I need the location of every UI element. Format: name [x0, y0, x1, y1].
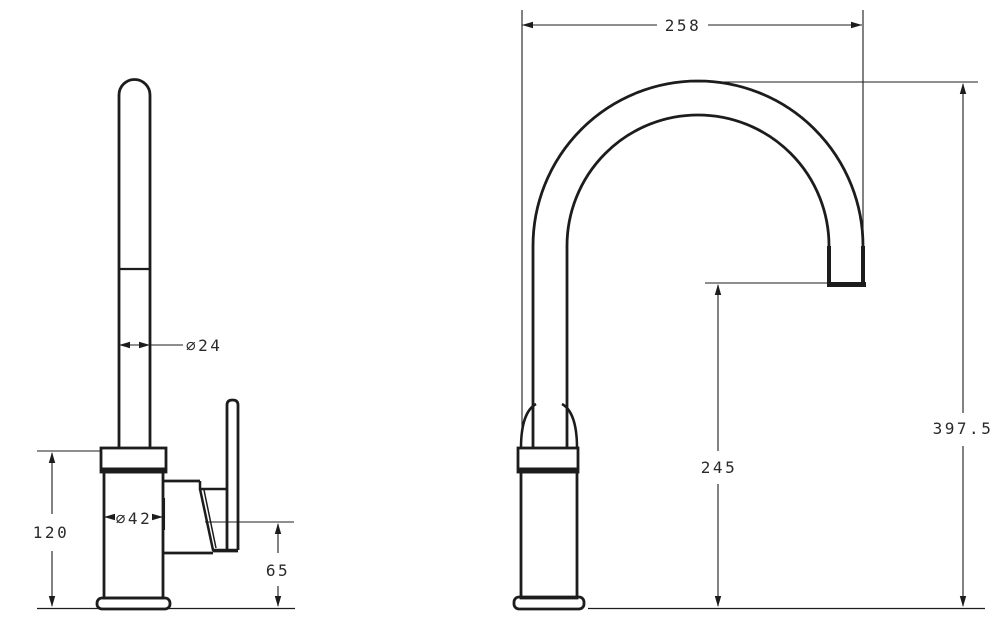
arrowhead-up-icon: [275, 523, 281, 534]
spout-arc-outer: [533, 81, 863, 246]
arrowhead-left-icon: [522, 22, 533, 28]
base-flange: [97, 598, 170, 609]
dim-label: 120: [33, 523, 69, 542]
arrowhead-right-icon: [851, 22, 862, 28]
arrowhead-up-icon: [49, 452, 55, 463]
dim-spout-height: 245: [701, 283, 827, 607]
dim-body-diameter: ∅42: [104, 498, 165, 530]
front-view: ∅24 ∅42 120 65: [33, 80, 295, 609]
side-view: 258 397.5 245: [514, 10, 993, 609]
arrowhead-right-icon: [139, 342, 150, 348]
spout-arc-inner: [567, 115, 829, 246]
arrowhead-up-icon: [715, 284, 721, 295]
dim-outlet-height: 65: [205, 522, 294, 607]
body-outline: [104, 472, 163, 598]
faucet-technical-drawing: ∅24 ∅42 120 65: [0, 0, 1000, 620]
dim-label: ∅24: [186, 336, 222, 355]
dim-spout-diameter: ∅24: [119, 336, 222, 355]
dim-label: 397.5: [933, 419, 994, 438]
dim-body-height: 120: [33, 451, 102, 607]
dim-label: 65: [266, 561, 290, 580]
handle-connector: [200, 481, 238, 550]
arrowhead-left-icon: [104, 514, 115, 520]
arrowhead-up-icon: [960, 83, 966, 94]
spout-outline: [119, 80, 150, 448]
arrowhead-down-icon: [960, 596, 966, 607]
arrowhead-left-icon: [119, 342, 130, 348]
dim-label: ∅42: [116, 509, 152, 528]
handle-lever: [227, 400, 238, 550]
dim-label: 258: [665, 16, 701, 35]
body-outline: [521, 472, 577, 598]
dim-label: 245: [701, 458, 737, 477]
dome-shoulder-right: [562, 404, 577, 448]
arrowhead-down-icon: [275, 596, 281, 607]
dim-spout-reach: 258: [522, 10, 863, 427]
arrowhead-right-icon: [152, 514, 163, 520]
drawing-canvas: ∅24 ∅42 120 65: [0, 0, 1000, 620]
arrowhead-down-icon: [715, 596, 721, 607]
arrowhead-down-icon: [49, 596, 55, 607]
